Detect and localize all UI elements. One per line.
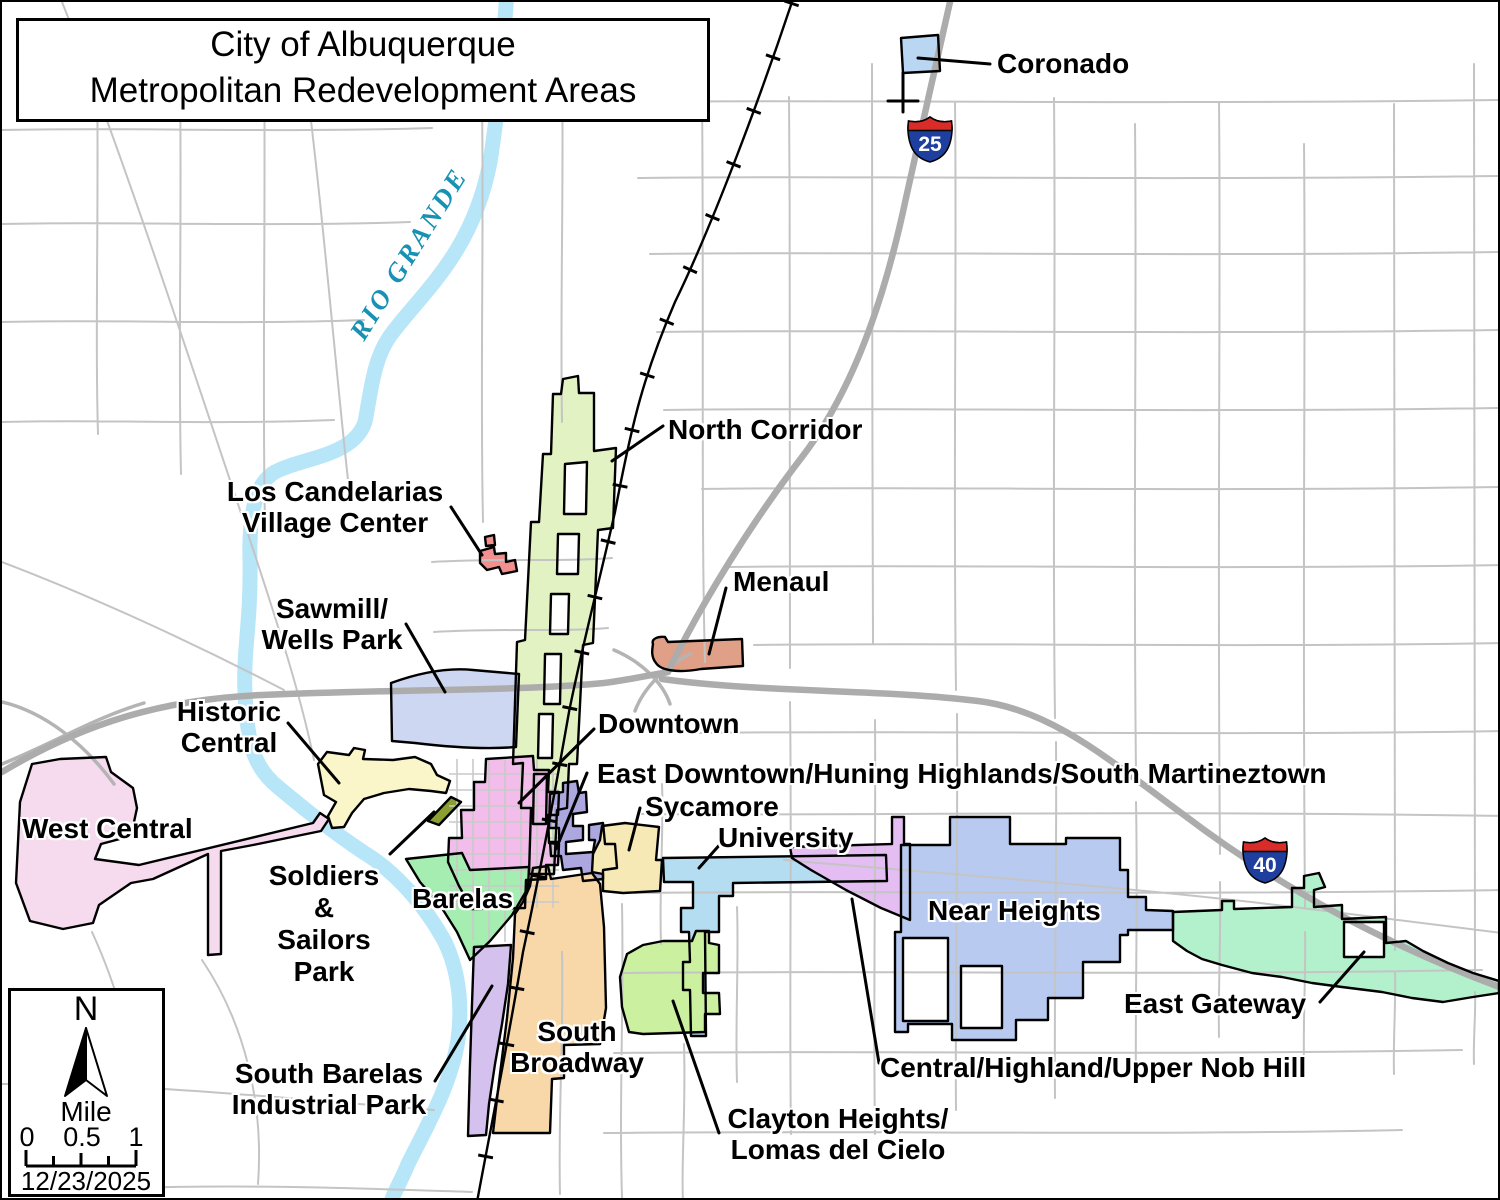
shield-chief	[1243, 838, 1287, 852]
region-label-historic-central: Historic Central	[177, 696, 281, 758]
region-label-university: University	[718, 822, 853, 853]
region-label-sawmill-wells-park: Sawmill/ Wells Park	[261, 593, 402, 655]
north-label: N	[74, 990, 99, 1029]
shield-route-number: 40	[1253, 854, 1276, 877]
region-label-barelas: Barelas	[412, 883, 513, 914]
region-label-downtown: Downtown	[598, 708, 740, 739]
interstate-25-shield: 25	[906, 115, 954, 163]
region-label-east-gateway: East Gateway	[1124, 988, 1306, 1019]
shield-chief	[908, 117, 952, 131]
map-date: 12/23/2025	[21, 1166, 151, 1197]
region-label-menaul: Menaul	[733, 566, 829, 597]
region-label-sycamore: Sycamore	[645, 791, 779, 822]
street-network	[2, 2, 1500, 1200]
region-label-soldiers-sailors-park: Soldiers & Sailors Park	[269, 860, 379, 988]
region-label-near-heights: Near Heights	[928, 895, 1101, 926]
region-label-clayton-heights: Clayton Heights/ Lomas del Cielo	[728, 1103, 949, 1165]
map-frame: RIO GRANDE City of Albuquerque Metropoli…	[0, 0, 1500, 1200]
region-label-south-barelas: South Barelas Industrial Park	[232, 1058, 427, 1120]
region-label-coronado: Coronado	[997, 48, 1129, 79]
region-label-central-highland: Central/Highland/Upper Nob Hill	[880, 1052, 1306, 1083]
leader-soldiers-sailors	[390, 812, 434, 854]
shield-route-number: 25	[918, 133, 942, 156]
region-label-los-candelarias: Los Candelarias Village Center	[227, 476, 443, 538]
region-label-west-central: West Central	[22, 813, 193, 844]
region-label-south-broadway: South Broadway	[510, 1016, 644, 1078]
basemap: RIO GRANDE	[2, 2, 1500, 1200]
interstate-40-shield: 40	[1241, 836, 1289, 884]
region-sawmill-wells-park-fill	[391, 669, 519, 748]
region-label-east-downtown: East Downtown/Huning Highlands/South Mar…	[597, 758, 1327, 789]
region-label-north-corridor: North Corridor	[668, 414, 862, 445]
map-title: City of Albuquerque Metropolitan Redevel…	[16, 18, 710, 122]
leader-los-candelarias	[451, 507, 482, 555]
north-arrow-icon	[56, 1026, 116, 1100]
